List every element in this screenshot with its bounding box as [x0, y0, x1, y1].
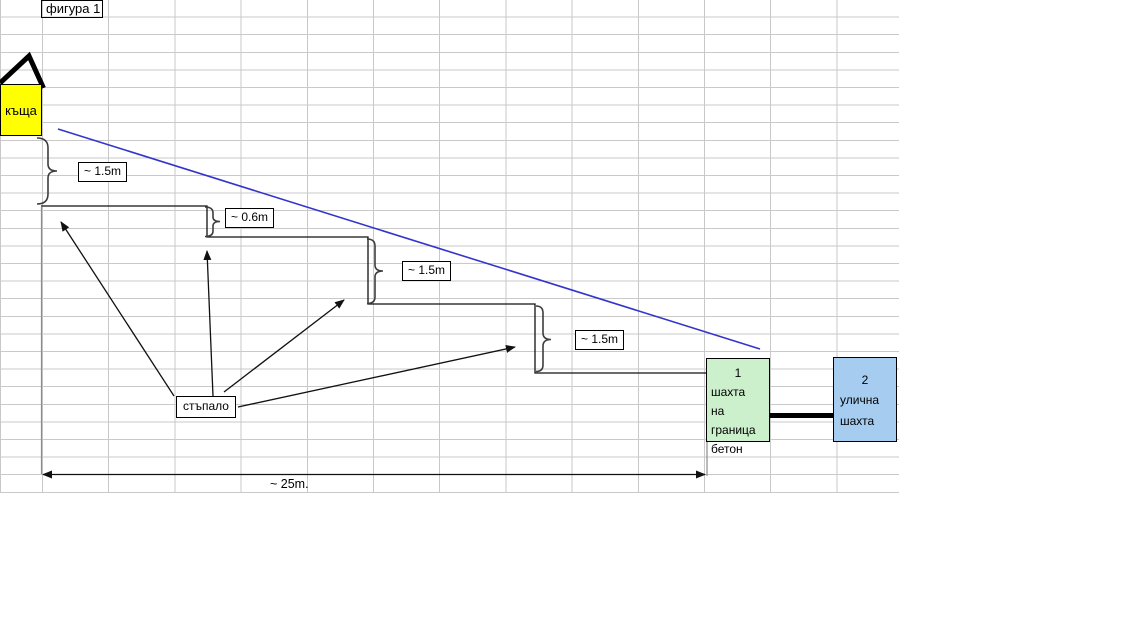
step-callout[interactable]: стъпало [176, 396, 236, 418]
step-arrow-4[interactable] [238, 347, 515, 407]
measure-tag-2-label: ~ 0.6m [231, 210, 268, 224]
street-shaft-number: 2 [834, 371, 896, 390]
measure-tag-4-label: ~ 1.5m [581, 332, 618, 346]
brace-step2-to-step3[interactable] [367, 239, 383, 304]
boundary-shaft-line-1: шахта [707, 383, 769, 402]
total-distance-label: ~ 25m. [270, 477, 309, 491]
brace-step3-to-step4[interactable] [536, 306, 551, 372]
boundary-shaft-number: 1 [707, 364, 769, 383]
measure-tag-2[interactable]: ~ 0.6m [225, 208, 274, 228]
step-callout-label: стъпало [183, 399, 229, 413]
brace-house-to-step1[interactable] [37, 138, 57, 204]
street-shaft-line-2: шахта [834, 411, 896, 432]
house-label: къща [5, 103, 37, 118]
spreadsheet-canvas: фигура 1 къща ~ 1.5m [0, 0, 1141, 619]
step-arrow-3[interactable] [224, 300, 344, 392]
pipe-connector[interactable] [770, 413, 833, 418]
total-distance-text: ~ 25m. [270, 477, 309, 491]
measure-tag-3[interactable]: ~ 1.5m [402, 261, 451, 281]
measure-tag-3-label: ~ 1.5m [408, 263, 445, 277]
measure-tag-1-label: ~ 1.5m [84, 164, 121, 178]
house-box[interactable]: къща [0, 84, 42, 136]
boundary-shaft-line-3: бетон [707, 440, 769, 459]
measure-tag-1[interactable]: ~ 1.5m [78, 162, 127, 182]
step-arrow-2[interactable] [207, 251, 213, 396]
measure-tag-4[interactable]: ~ 1.5m [575, 330, 624, 350]
boundary-shaft-box[interactable]: 1 шахта на граница бетон [706, 358, 770, 442]
step-arrow-1[interactable] [61, 222, 174, 396]
diagram-drawing-layer [0, 0, 1141, 619]
boundary-shaft-line-2: на граница [707, 402, 769, 440]
slope-line[interactable] [58, 129, 760, 349]
street-shaft-box[interactable]: 2 улична шахта [833, 357, 897, 442]
street-shaft-line-1: улична [834, 390, 896, 411]
